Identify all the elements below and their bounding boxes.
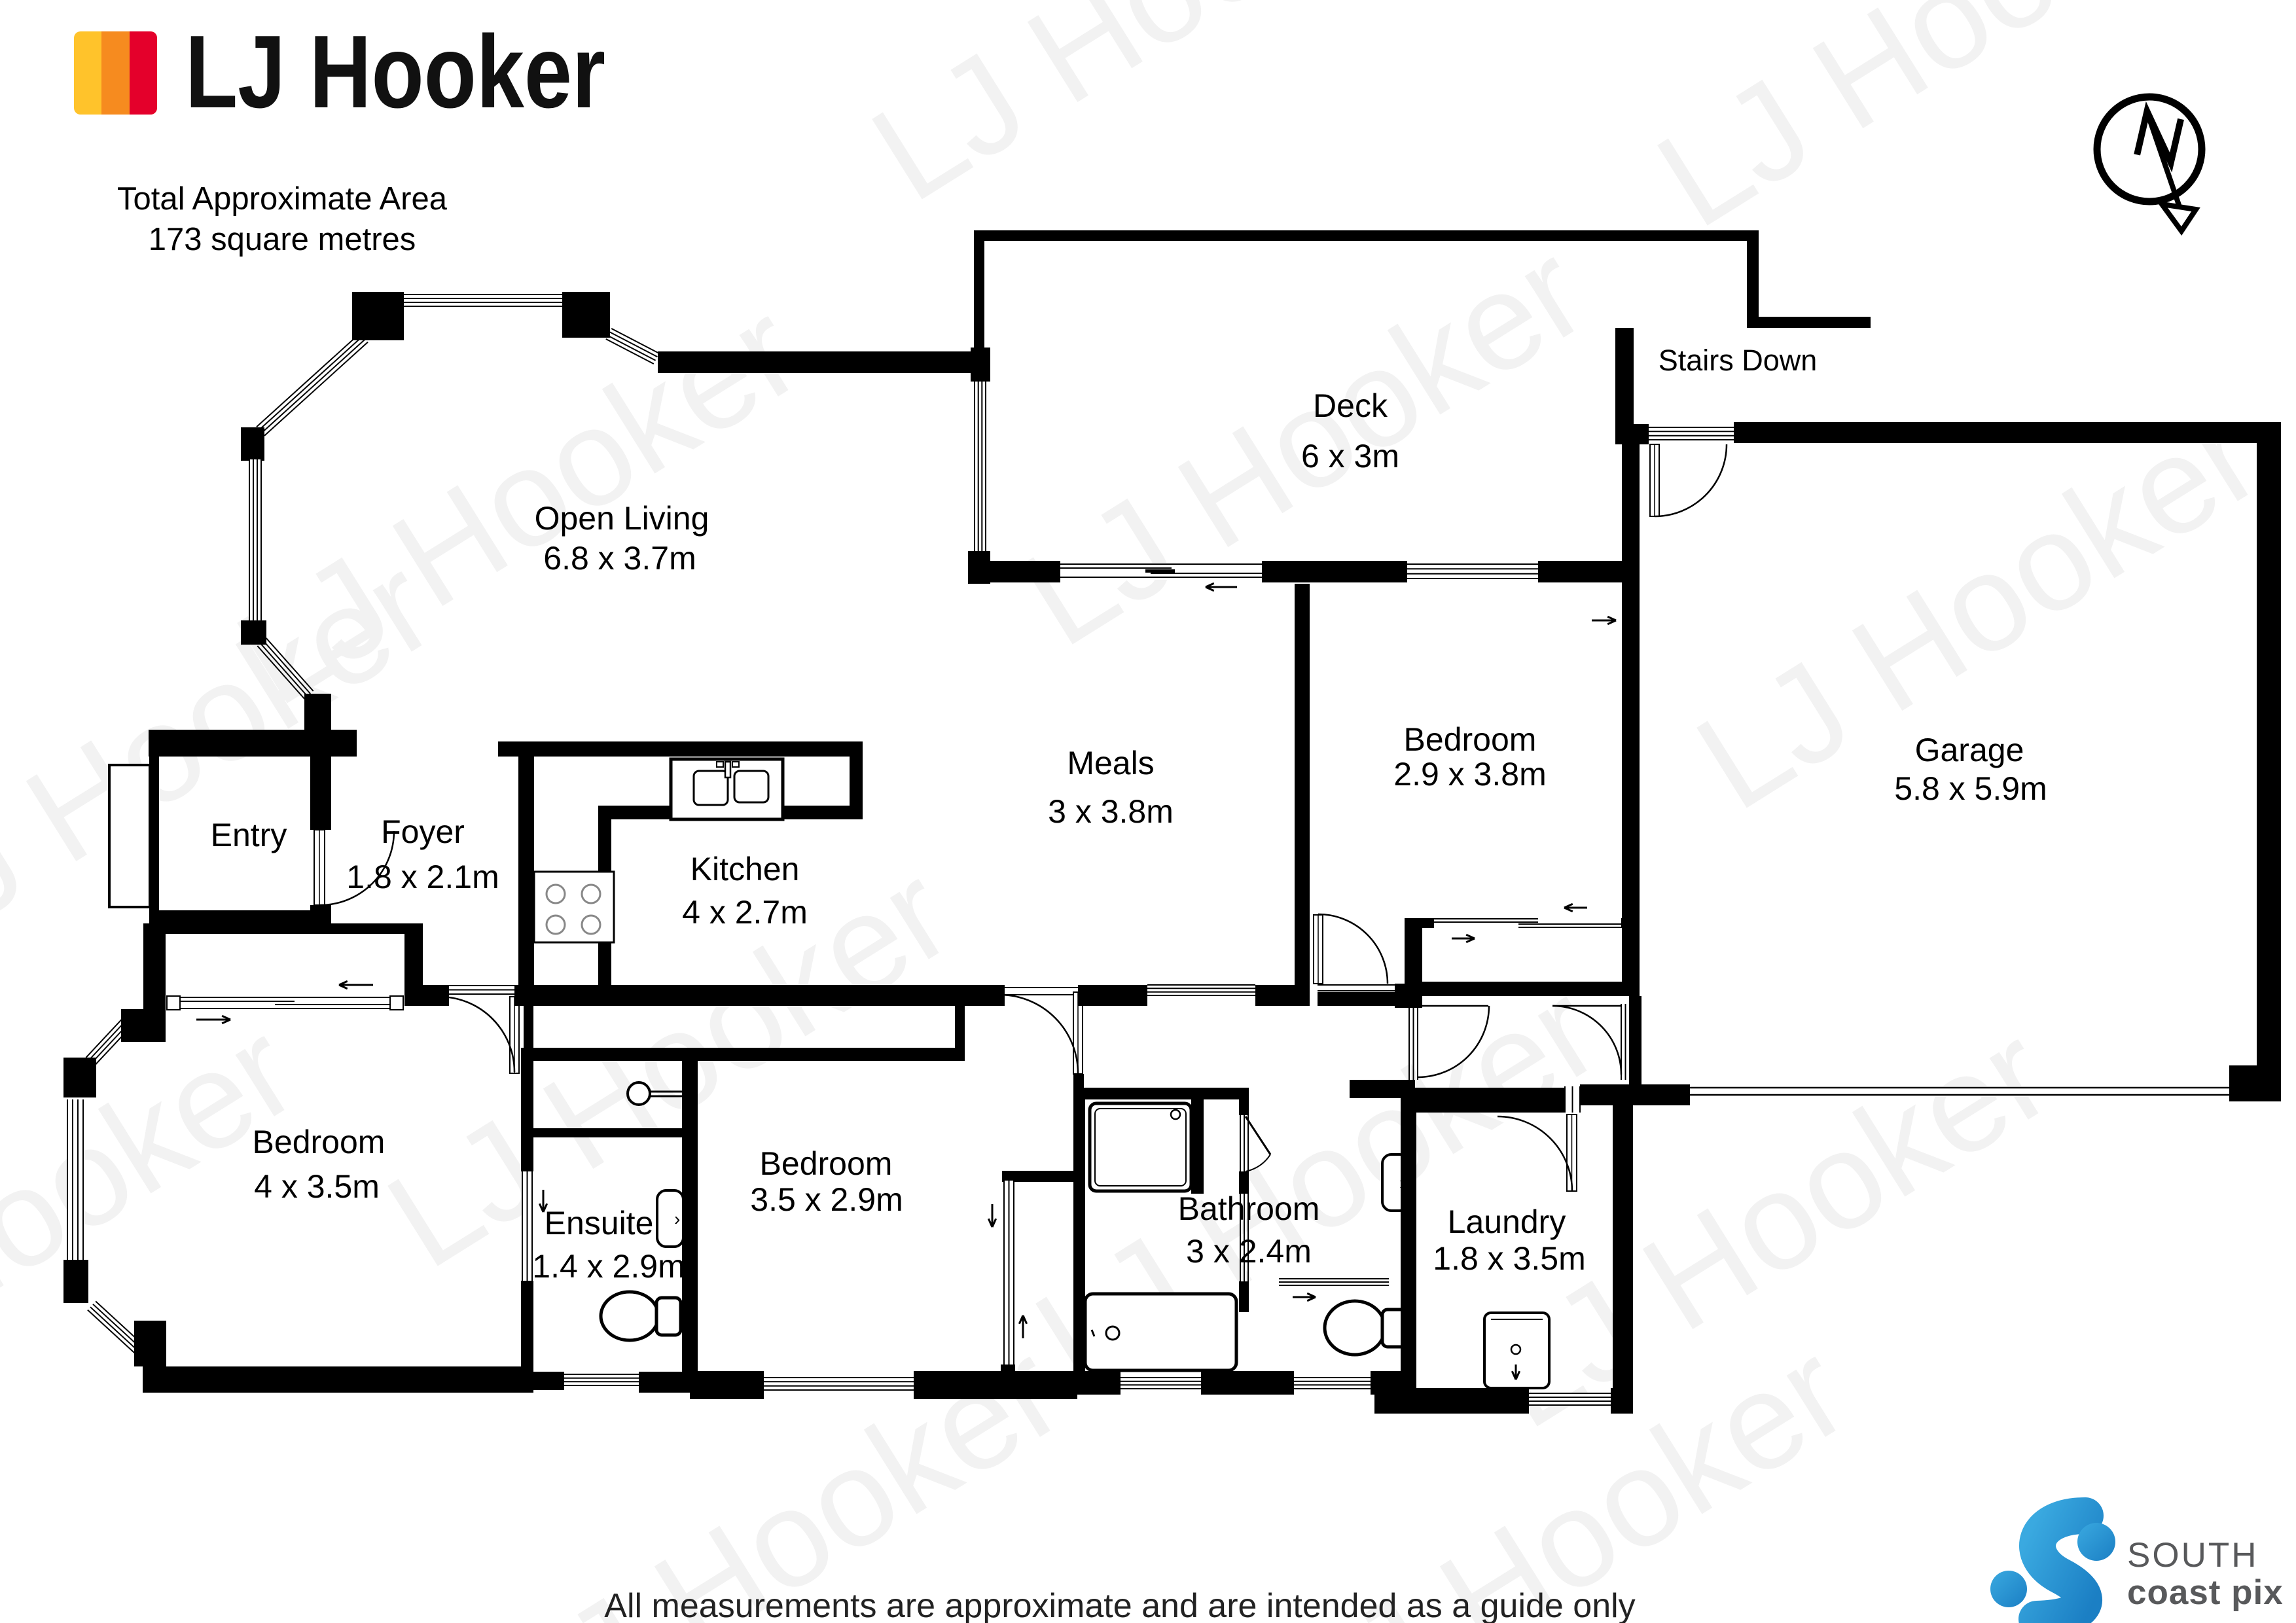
svg-text:›: › [674, 1209, 680, 1229]
svg-text:2.9 x 3.8m: 2.9 x 3.8m [1393, 756, 1546, 793]
svg-text:Open Living: Open Living [535, 500, 709, 537]
svg-text:Kitchen: Kitchen [691, 851, 800, 887]
svg-text:Ensuite: Ensuite [545, 1205, 654, 1241]
svg-text:Bedroom: Bedroom [253, 1124, 386, 1160]
svg-text:4 x 2.7m: 4 x 2.7m [682, 894, 808, 931]
svg-text:Total Approximate Area: Total Approximate Area [117, 181, 448, 217]
svg-text:5.8 x 5.9m: 5.8 x 5.9m [1894, 770, 2047, 807]
svg-text:Bathroom: Bathroom [1178, 1190, 1320, 1227]
svg-text:coast pix: coast pix [2127, 1573, 2284, 1612]
svg-text:1.8 x 2.1m: 1.8 x 2.1m [346, 859, 499, 895]
svg-text:4 x 3.5m: 4 x 3.5m [254, 1168, 380, 1205]
svg-text:SOUTH: SOUTH [2127, 1536, 2259, 1575]
svg-text:Bedroom: Bedroom [1404, 721, 1537, 758]
svg-text:1.8 x 3.5m: 1.8 x 3.5m [1433, 1240, 1585, 1277]
svg-text:Laundry: Laundry [1448, 1204, 1566, 1240]
svg-text:3 x 3.8m: 3 x 3.8m [1048, 793, 1174, 830]
svg-text:Bedroom: Bedroom [760, 1145, 893, 1182]
svg-text:Entry: Entry [211, 817, 287, 853]
svg-text:LJ Hooker: LJ Hooker [185, 14, 605, 130]
svg-text:Garage: Garage [1915, 732, 2024, 768]
svg-text:1.4 x 2.9m: 1.4 x 2.9m [532, 1248, 685, 1285]
svg-text:Foyer: Foyer [381, 813, 465, 850]
svg-text:6 x 3m: 6 x 3m [1301, 438, 1399, 474]
svg-text:Stairs Down: Stairs Down [1659, 344, 1818, 377]
svg-text:173 square metres: 173 square metres [149, 222, 416, 257]
svg-text:6.8 x 3.7m: 6.8 x 3.7m [543, 540, 696, 577]
svg-text:All measurements are approxima: All measurements are approximate and are… [604, 1587, 1635, 1623]
svg-text:3.5 x 2.9m: 3.5 x 2.9m [750, 1181, 903, 1218]
svg-text:Meals: Meals [1067, 745, 1154, 781]
svg-text:3 x 2.4m: 3 x 2.4m [1186, 1233, 1312, 1270]
svg-text:Deck: Deck [1313, 387, 1388, 424]
